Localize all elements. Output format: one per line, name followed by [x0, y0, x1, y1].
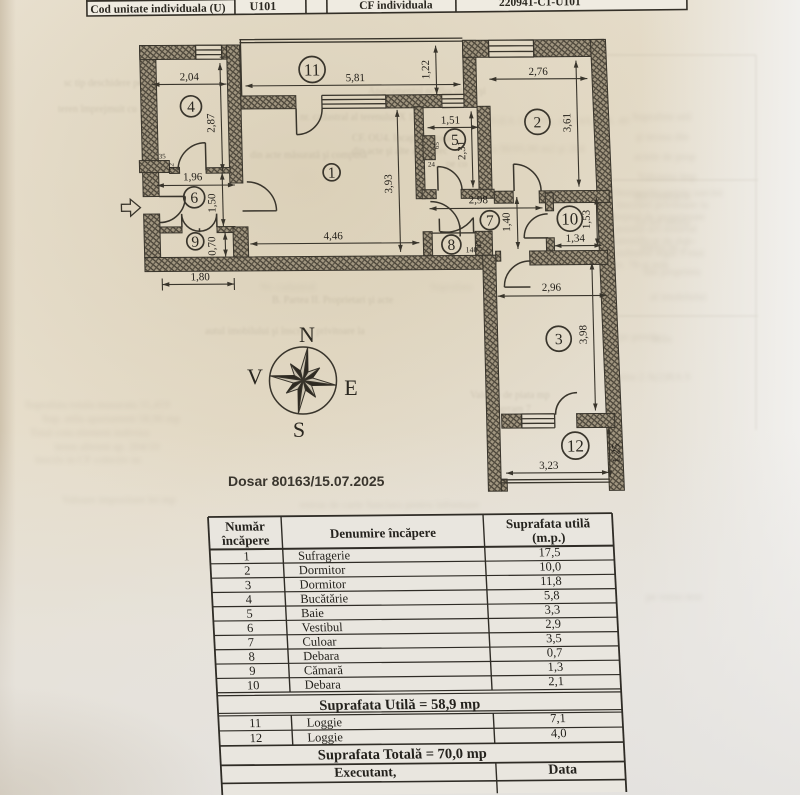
svg-text:Dormitor: Dormitor	[299, 577, 347, 591]
svg-text:Sup. utila apartament 58,90 mp: Sup. utila apartament 58,90 mp	[42, 413, 181, 425]
svg-text:Culoar: Culoar	[302, 634, 338, 648]
svg-text:10,0: 10,0	[539, 559, 562, 573]
svg-text:Loggie: Loggie	[306, 715, 343, 729]
svg-text:Debara: Debara	[303, 649, 340, 663]
svg-text:Dormitor: Dormitor	[298, 563, 346, 577]
svg-text:2: 2	[244, 564, 251, 578]
svg-text:Data: Data	[548, 762, 578, 777]
svg-text:24: 24	[428, 161, 436, 169]
svg-text:3,98: 3,98	[577, 324, 589, 344]
svg-text:11: 11	[249, 716, 262, 730]
svg-text:lamina 2 A(2)RA S: lamina 2 A(2)RA S	[606, 371, 691, 383]
svg-text:2,1: 2,1	[548, 674, 564, 688]
svg-text:S: S	[293, 417, 305, 442]
svg-text:8: 8	[248, 650, 255, 664]
svg-text:3,5: 3,5	[546, 631, 562, 645]
svg-text:35: 35	[159, 152, 167, 160]
svg-text:6: 6	[190, 190, 198, 207]
svg-text:22: 22	[167, 162, 175, 170]
svg-text:Suprafata: Suprafata	[430, 281, 472, 293]
svg-text:pe verso text: pe verso text	[646, 591, 702, 603]
svg-text:7: 7	[486, 213, 494, 230]
svg-text:2,98: 2,98	[469, 194, 489, 206]
svg-text:Denumire încăpere: Denumire încăpere	[330, 525, 437, 541]
svg-text:CF individuala: CF individuala	[359, 0, 433, 12]
svg-text:autul imobilului şi înscrieri: autul imobilului şi înscrieri privitoare…	[205, 326, 365, 337]
svg-text:3,3: 3,3	[544, 602, 560, 616]
svg-text:12: 12	[249, 731, 262, 745]
svg-text:1: 1	[243, 549, 250, 563]
svg-text:CF. OU4. Incaperi terasa: CF. OU4. Incaperi terasa	[352, 133, 452, 144]
svg-text:12: 12	[567, 436, 584, 455]
svg-text:2,87: 2,87	[205, 113, 217, 133]
svg-text:0,70: 0,70	[206, 236, 218, 256]
svg-text:17,5: 17,5	[538, 545, 561, 559]
svg-text:actele de prop: actele de prop	[634, 151, 696, 163]
svg-text:Apartamentul nr. Bucuresti şi: Apartamentul nr. Bucuresti şi	[368, 86, 486, 97]
svg-text:al imobilului: al imobilului	[650, 291, 707, 303]
svg-text:B. Partea II. Proprietari şi a: B. Partea II. Proprietari şi acte	[272, 295, 394, 306]
svg-text:6: 6	[247, 621, 254, 635]
svg-text:10: 10	[247, 678, 260, 692]
svg-text:apартam 7: apартam 7	[488, 404, 531, 415]
svg-text:Bucătărie: Bucătărie	[300, 591, 349, 605]
svg-text:3: 3	[555, 331, 563, 348]
svg-text:a 90/05,90 m2 şi 204: a 90/05,90 m2 şi 204	[492, 143, 585, 155]
svg-text:înscris in CF colectiv nr.: înscris in CF colectiv nr.	[34, 454, 143, 466]
svg-text:Nr. cadastral: Nr. cadastral	[260, 281, 316, 293]
svg-text:Suprafata Totală = 70,0 mp: Suprafata Totală = 70,0 mp	[317, 746, 487, 764]
svg-text:3,23: 3,23	[539, 460, 559, 472]
svg-text:Loggie: Loggie	[307, 730, 344, 744]
svg-text:47: 47	[474, 240, 483, 248]
svg-text:Cod unitate individuala (U): Cod unitate individuala (U)	[90, 2, 225, 15]
svg-text:teren aferent ap. 204/10: teren aferent ap. 204/10	[55, 441, 160, 453]
svg-text:utila: utila	[652, 333, 672, 345]
svg-text:Vestibul: Vestibul	[301, 620, 343, 634]
svg-text:1,25: 1,25	[610, 443, 622, 463]
svg-text:sc tip deschidere pentru: sc tip deschidere pentru	[64, 78, 159, 89]
svg-text:anexa nr. 2: anexa nr. 2	[640, 241, 688, 253]
svg-text:5: 5	[246, 607, 253, 621]
svg-text:9: 9	[191, 234, 199, 251]
svg-text:Suprafete util: Suprafete util	[632, 111, 692, 123]
svg-text:10: 10	[561, 210, 578, 229]
svg-text:1,51: 1,51	[441, 114, 461, 126]
svg-text:1: 1	[328, 165, 336, 182]
svg-text:11,8: 11,8	[540, 574, 562, 588]
svg-text:1,96: 1,96	[183, 171, 203, 183]
svg-text:1,50: 1,50	[206, 193, 218, 213]
svg-text:Executant,: Executant,	[334, 764, 397, 780]
svg-text:7: 7	[247, 635, 254, 649]
svg-text:Total cota element indiviza: Total cota element indiviza	[30, 427, 149, 439]
svg-text:4: 4	[187, 99, 195, 116]
svg-text:U101: U101	[249, 0, 276, 13]
svg-text:Valoare impozitare lei mp: Valoare impozitare lei mp	[62, 494, 176, 506]
svg-text:2,9: 2,9	[545, 617, 561, 631]
svg-text:1,40: 1,40	[501, 212, 513, 232]
svg-text:Baie: Baie	[301, 606, 325, 620]
svg-text:4,0: 4,0	[551, 726, 567, 740]
svg-text:4,46: 4,46	[323, 230, 343, 242]
svg-text:1,3: 1,3	[547, 660, 563, 674]
svg-text:JGEA 17, IML, enti 4A, mrl. 40: JGEA 17, IML, enti 4A, mrl. 40	[488, 115, 630, 127]
svg-text:teren împrejmuit cu: teren împrejmuit cu	[58, 104, 137, 115]
svg-text:9: 9	[249, 664, 256, 678]
svg-text:(m.p.): (m.p.)	[532, 530, 566, 545]
svg-text:Suprafata Utilă = 58,9 mp: Suprafata Utilă = 58,9 mp	[319, 696, 481, 714]
svg-text:7,1: 7,1	[550, 711, 566, 725]
svg-text:5,8: 5,8	[544, 588, 560, 602]
svg-text:extras de carte funciara pentr: extras de carte funciara pentru informar…	[300, 499, 479, 511]
svg-text:2,96: 2,96	[542, 282, 562, 294]
svg-text:Sufragerie: Sufragerie	[298, 548, 351, 562]
svg-text:din proprieta: din proprieta	[644, 266, 701, 278]
svg-text:V: V	[247, 364, 263, 389]
svg-text:1,34: 1,34	[566, 233, 586, 245]
svg-text:11: 11	[304, 60, 321, 79]
svg-text:0,7: 0,7	[546, 645, 562, 659]
svg-text:1,22: 1,22	[420, 60, 432, 79]
svg-text:Cămară: Cămară	[304, 663, 344, 677]
svg-text:5,81: 5,81	[346, 72, 366, 84]
svg-text:Suprafata totala masurata 31,4: Suprafata totala masurata 31,419	[25, 399, 170, 411]
svg-text:5: 5	[451, 132, 459, 149]
svg-text:Dosar 80163/15.07.2025: Dosar 80163/15.07.2025	[228, 473, 385, 489]
svg-text:din contracte: din contracte	[634, 191, 691, 203]
svg-text:3,93: 3,93	[383, 174, 395, 194]
svg-text:cu act terasa: cu act terasa	[636, 216, 690, 228]
svg-text:nr. cadastral al terenului X 1: nr. cadastral al terenului X 1.-	[300, 112, 419, 123]
svg-text:Valoarea imp: Valoarea imp	[638, 171, 697, 183]
svg-text:E: E	[344, 375, 357, 400]
svg-text:din acte măsurată şi compusă: din acte măsurată şi compusă	[250, 150, 368, 161]
svg-text:220941-C1-U101: 220941-C1-U101	[499, 0, 581, 9]
svg-text:încăpere: încăpere	[221, 532, 270, 547]
svg-text:2,76: 2,76	[528, 66, 548, 78]
svg-text:3: 3	[245, 578, 252, 592]
svg-text:1,80: 1,80	[190, 271, 210, 283]
svg-text:şi terasa din: şi terasa din	[636, 131, 689, 143]
svg-text:Debara: Debara	[304, 677, 341, 691]
svg-text:pe co: pe co	[446, 159, 467, 170]
svg-text:8: 8	[447, 237, 455, 254]
svg-text:2,04: 2,04	[180, 71, 200, 83]
svg-text:Valoare de piata mp: Valoare de piata mp	[470, 390, 550, 401]
